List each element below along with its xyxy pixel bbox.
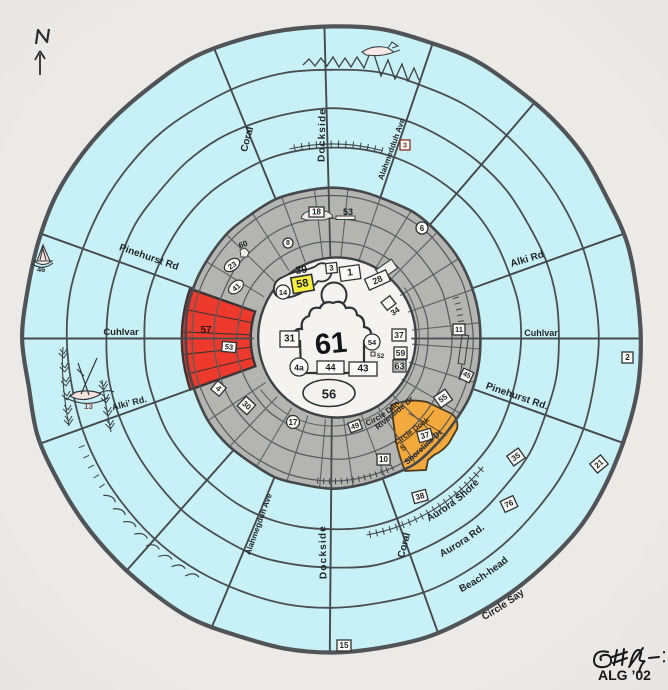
svg-text:53: 53 xyxy=(224,342,233,352)
svg-text:46: 46 xyxy=(37,265,45,274)
svg-text:Dockside: Dockside xyxy=(317,108,329,162)
svg-text:2: 2 xyxy=(625,353,630,362)
svg-text:6: 6 xyxy=(420,224,425,233)
svg-text:Dockside: Dockside xyxy=(318,525,330,579)
svg-text:37: 37 xyxy=(394,330,404,340)
svg-text:63: 63 xyxy=(395,361,405,371)
svg-text:57: 57 xyxy=(200,325,212,336)
svg-text:18: 18 xyxy=(312,208,321,217)
svg-text:58: 58 xyxy=(295,277,309,291)
svg-text:10: 10 xyxy=(379,455,388,464)
svg-text:Cuhlvar: Cuhlvar xyxy=(103,327,139,338)
svg-text:ALG ’02: ALG ’02 xyxy=(598,667,651,683)
svg-text:52: 52 xyxy=(377,353,385,360)
svg-text:59: 59 xyxy=(396,348,406,358)
svg-text:Cuhlvar: Cuhlvar xyxy=(524,328,558,338)
svg-text:31: 31 xyxy=(284,334,296,345)
svg-text:44: 44 xyxy=(325,363,335,373)
svg-text:61: 61 xyxy=(314,327,349,362)
svg-text:13: 13 xyxy=(84,402,93,411)
svg-text:43: 43 xyxy=(357,364,369,375)
svg-text:15: 15 xyxy=(340,641,349,650)
svg-text:8: 8 xyxy=(286,240,290,247)
svg-text:56: 56 xyxy=(322,387,336,402)
svg-text:39: 39 xyxy=(295,263,308,277)
svg-text:54: 54 xyxy=(368,338,377,347)
svg-text:11: 11 xyxy=(455,325,463,334)
svg-text:14: 14 xyxy=(279,288,288,297)
svg-text:4a: 4a xyxy=(294,363,304,373)
svg-text:17: 17 xyxy=(289,418,298,427)
svg-text:3: 3 xyxy=(403,141,407,150)
